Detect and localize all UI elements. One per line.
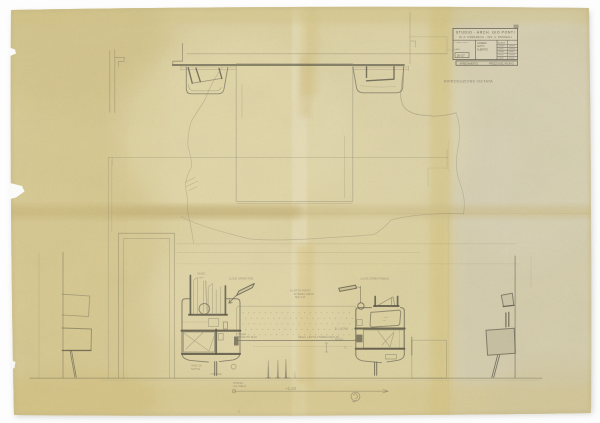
svg-text:ARREDAMENTO: ARREDAMENTO	[460, 62, 479, 65]
svg-text:OTTONE: OTTONE	[211, 372, 222, 376]
svg-text:N.2027: N.2027	[498, 43, 506, 45]
svg-text:20-27: 20-27	[457, 54, 465, 58]
svg-text:COMMITTENTE: COMMITTENTE	[455, 42, 470, 44]
svg-text:LUCE ORIENTAB.: LUCE ORIENTAB.	[229, 277, 254, 281]
svg-text:IN. A. FORNAROLI - ING. A. ROS: IN. A. FORNAROLI - ING. A. ROSSELLI	[459, 35, 512, 39]
svg-text:DATA: DATA	[455, 48, 461, 51]
svg-text:5: 5	[238, 410, 240, 414]
svg-text:VANO: VANO	[197, 272, 206, 276]
svg-text:~1,20: ~1,20	[285, 386, 297, 391]
svg-text:PREZZO DEL RICAVO: PREZZO DEL RICAVO	[489, 62, 514, 65]
svg-text:MQ 3.10: MQ 3.10	[295, 295, 306, 299]
svg-text:NOTTE: NOTTE	[191, 367, 200, 371]
svg-text:ALBERTO: ALBERTO	[477, 48, 488, 51]
svg-text:LUCE ORIENTABILE: LUCE ORIENTABILE	[361, 277, 389, 281]
svg-text:ALL.CIELO: ALL.CIELO	[233, 384, 246, 388]
svg-text:SEGG. LETTO A TERRA MQ 0.20: SEGG. LETTO A TERRA MQ 0.20	[298, 335, 339, 339]
svg-text:STUDIO - ARCH. GIO PONTI: STUDIO - ARCH. GIO PONTI	[456, 30, 515, 34]
svg-text:TESSUTO MAO: TESSUTO MAO	[238, 335, 258, 339]
svg-text:RADIO: RADIO	[335, 338, 344, 342]
svg-text:RIPRODUZIONE VIETATA: RIPRODUZIONE VIETATA	[444, 79, 493, 83]
svg-text:B. LUCINA: B. LUCINA	[335, 327, 348, 331]
svg-text:CAMERA: CAMERA	[477, 42, 487, 45]
